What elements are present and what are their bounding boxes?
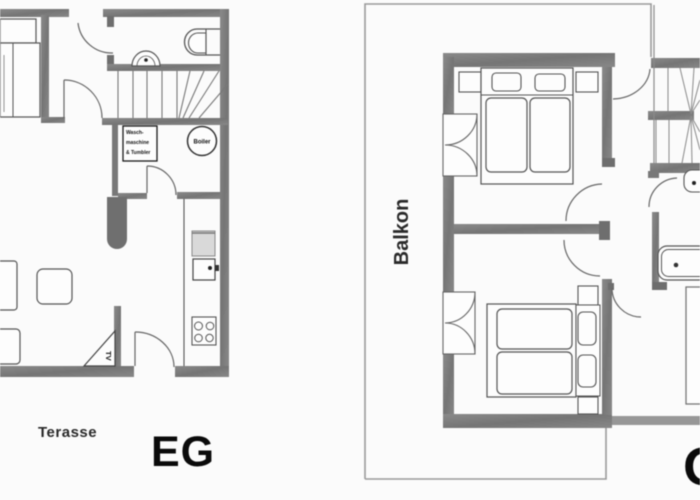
svg-text:maschine: maschine [126,140,149,146]
svg-text:EG: EG [151,428,215,476]
svg-text:TV: TV [104,351,113,361]
svg-text:Terasse: Terasse [38,424,97,441]
svg-text:& Tumbler: & Tumbler [126,150,150,156]
svg-text:Balkon: Balkon [391,199,413,266]
svg-text:Boiler: Boiler [193,140,211,146]
svg-text:OG: OG [683,437,700,497]
svg-text:Wasch-: Wasch- [126,130,144,136]
